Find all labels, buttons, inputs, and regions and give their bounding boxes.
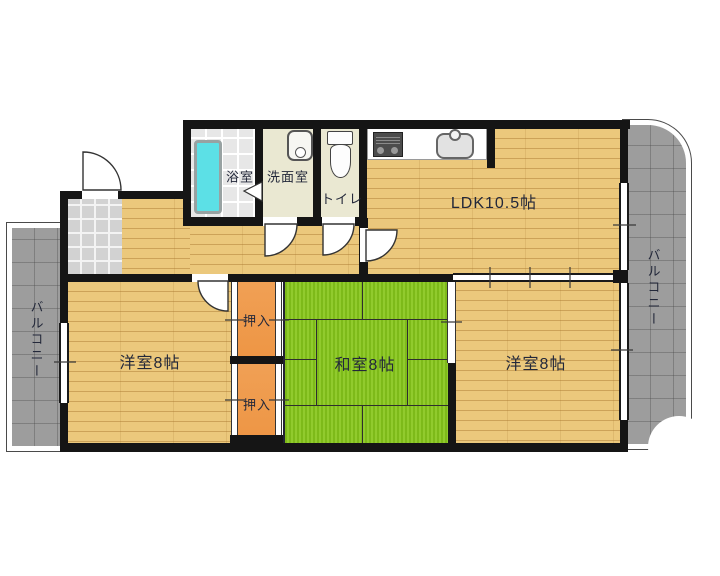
kitchen-faucet-icon [449, 129, 461, 141]
stove-icon [373, 132, 403, 157]
sliding-door-closet-upper-east [275, 282, 282, 356]
wall [313, 120, 321, 226]
wall [448, 363, 456, 444]
tatami-line [283, 359, 316, 360]
label-western-left: 洋室8帖 [120, 349, 181, 373]
sliding-door-closet-lower-west [231, 364, 238, 435]
window-western-left [59, 323, 69, 403]
stove-grill [376, 135, 400, 144]
label-closet-lower: 押入 [243, 395, 271, 414]
stove-burner [391, 147, 398, 154]
label-balcony-right: バルコニー [644, 248, 663, 328]
wall [228, 274, 453, 282]
wall [255, 120, 263, 226]
wall [183, 120, 191, 225]
toilet-tank-icon [327, 131, 353, 145]
window-ldk [619, 183, 629, 270]
label-washroom: 洗面室 [267, 167, 309, 186]
wall [183, 217, 263, 226]
entry-door-opening [82, 191, 118, 199]
label-japanese: 和室8帖 [335, 351, 396, 375]
stove-burner [377, 147, 384, 154]
sliding-door-ldk-western-right [453, 273, 613, 282]
window-western-right [619, 283, 629, 420]
wall [613, 270, 628, 283]
hallway-a [122, 199, 190, 274]
sliding-door-japanese-western-right [447, 282, 456, 363]
tatami-line [362, 281, 363, 319]
wall [359, 120, 367, 227]
wall [60, 191, 68, 323]
wall [487, 128, 495, 168]
wall [60, 443, 628, 452]
balcony-corner-cut [648, 416, 710, 478]
wall [620, 420, 628, 452]
label-ldk: LDK10.5帖 [451, 189, 537, 213]
western-left-door-opening [192, 274, 228, 282]
label-western-right: 洋室8帖 [506, 350, 567, 374]
entry-door-arc [83, 152, 121, 190]
room-entrance [68, 199, 122, 274]
label-balcony-left: バルコニー [27, 300, 46, 380]
tatami-line [283, 405, 448, 406]
tatami-line [283, 319, 448, 320]
wall [620, 120, 628, 183]
wall [296, 217, 323, 226]
washbasin-drain-icon [295, 147, 306, 158]
bathtub-icon [194, 140, 222, 214]
tatami-line [407, 359, 448, 360]
tatami-line [407, 319, 408, 406]
tatami-line [362, 405, 363, 443]
wall [230, 356, 283, 364]
wall [118, 191, 190, 199]
tatami-line [316, 319, 317, 406]
wall [230, 435, 283, 444]
sliding-door-closet-lower-east [275, 364, 282, 435]
wall [60, 274, 192, 282]
label-closet-upper: 押入 [243, 311, 271, 330]
toilet-bowl-icon [330, 144, 351, 178]
floorplan-canvas: 浴室 洗面室 トイレ LDK10.5帖 洋室8帖 和室8帖 洋室8帖 押入 押入… [0, 0, 720, 576]
label-toilet: トイレ [321, 189, 363, 208]
wall [359, 218, 368, 282]
wall [183, 120, 630, 129]
hallway-b [190, 225, 367, 274]
sliding-door-closet-upper-west [231, 282, 238, 356]
label-bath: 浴室 [226, 167, 254, 186]
